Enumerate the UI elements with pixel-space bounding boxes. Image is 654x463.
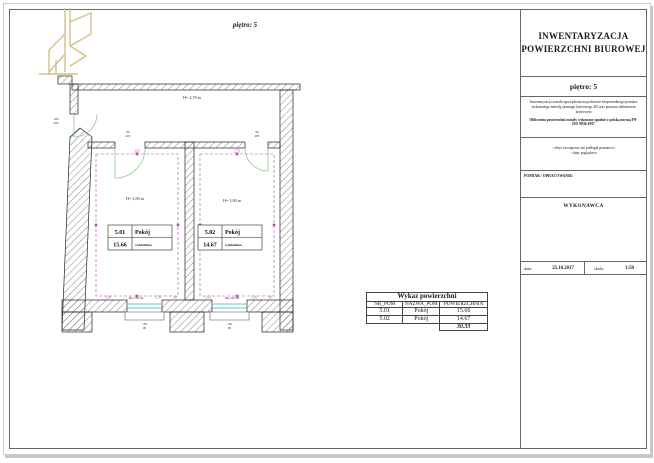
svg-text:205: 205 <box>54 121 59 125</box>
titleblock-empty-section <box>521 275 646 435</box>
room2-parapet-label: Hp= 90 cm <box>225 296 240 300</box>
bottom-right-pier <box>262 312 293 332</box>
norm-note: Obliczenia powierzchni zostały wykonane … <box>527 118 640 128</box>
room1-flooring: wykładzina <box>135 243 152 247</box>
area-table-title: Wykaz powierzchni <box>367 293 488 302</box>
scale-label: skala: <box>585 266 613 271</box>
room1-door-swing-arc <box>115 148 145 178</box>
table-row: 5.01 Pokój 15.66 <box>367 308 488 316</box>
dim-node-marker <box>273 224 276 227</box>
column-header: NAZWA_POM <box>403 301 440 308</box>
total-area: 30.33 <box>440 323 488 331</box>
area-table: Wykaz powierzchni NR_POM NAZWA_POM POWIE… <box>366 292 488 331</box>
room2-window-size-label: 150 90 <box>227 322 232 330</box>
bottom-left-pier <box>62 312 92 332</box>
cell-pow: 14.67 <box>440 316 488 324</box>
room2-name: Pokój <box>225 230 240 236</box>
bottom-center-pier <box>170 312 204 332</box>
room1-parapet-label: Hp= 90 cm <box>129 296 144 300</box>
dim-node-marker <box>177 224 180 227</box>
titleblock-floor: piętro: 5 <box>521 77 646 97</box>
room2-height-label: H= 2,80 m <box>223 198 242 204</box>
survey-method-note: Inwentaryzacja została sporządzona na po… <box>527 100 640 115</box>
room2-door-size-label: 90 205 <box>255 130 260 138</box>
room1-bottom-dim-mid: 1,50 <box>155 296 161 301</box>
date-value: 25.10.2017 <box>542 266 584 271</box>
titleblock-outline-note: - obrys zewnętrzny nie podlegał pomiarow… <box>521 138 646 171</box>
titleblock-pomiar-section: POMIAR / OPRACOWANIE: <box>521 171 646 198</box>
corridor-door-size-label: 100 205 <box>54 117 59 125</box>
bottom-wall-segment <box>247 300 293 312</box>
table-total-row: 30.33 <box>367 323 488 331</box>
sheet-title-line1: INWENTARYZACJA <box>521 30 645 42</box>
titleblock-notes: Inwentaryzacja została sporządzona na po… <box>521 97 646 138</box>
outline-note-line2: - służy poglądowo <box>531 151 636 156</box>
cell-nr: 5.02 <box>367 316 403 324</box>
pomiar-label: POMIAR / OPRACOWANIE: <box>524 174 573 178</box>
room1-area: 15.66 <box>113 243 127 249</box>
column-header: POWIERZCHNIA <box>440 301 488 308</box>
window-sill <box>125 312 164 320</box>
bottom-wall-segment <box>162 300 212 312</box>
column-header: NR_POM <box>367 301 403 308</box>
room1-window-size-label: 150 90 <box>142 322 147 330</box>
titleblock-footer: data: 25.10.2017 skala: 1:50 <box>521 262 646 275</box>
room2-number: 5.02 <box>205 230 216 236</box>
room1-door-size-label: 90 205 <box>126 130 131 138</box>
drawing-sheet: piętro: 5 <box>0 0 654 463</box>
wykonawca-label: WYKONAWCA <box>563 203 603 209</box>
room1-name: Pokój <box>135 230 150 236</box>
cell-nazwa: Pokój <box>403 316 440 324</box>
bottom-wall-segment <box>62 300 127 312</box>
scale-value: 1:50 <box>613 266 646 271</box>
svg-text:90: 90 <box>143 326 147 330</box>
logo-monogram-lines <box>39 8 91 74</box>
right-exterior-wall <box>280 90 293 330</box>
svg-text:90: 90 <box>228 326 232 330</box>
svg-text:205: 205 <box>255 134 260 138</box>
date-label: data: <box>521 266 542 271</box>
room1-number: 5.01 <box>115 230 126 236</box>
window-sill <box>210 312 249 320</box>
room2-bottom-dim-right: 40 <box>268 296 272 300</box>
top-left-wall-jog <box>58 76 72 84</box>
sheet-title-line2: POWIERZCHNI BIUROWEJ <box>521 43 645 55</box>
partition-wall <box>185 142 194 300</box>
cell-pow: 15.66 <box>440 308 488 316</box>
corridor-height-label: H= 2,70 m <box>183 95 202 101</box>
titleblock-title-section: INWENTARYZACJA POWIERZCHNI BIUROWEJ <box>521 9 646 77</box>
cell-nr: 5.01 <box>367 308 403 316</box>
table-header-row: NR_POM NAZWA_POM POWIERZCHNIA <box>367 301 488 308</box>
room2-door-swing-arc <box>245 148 268 171</box>
room-top-wall-segment <box>268 142 280 148</box>
floor-label: piętro: 5 <box>200 21 290 29</box>
table-row: 5.02 Pokój 14.67 <box>367 316 488 324</box>
left-upper-wall-stub <box>70 84 78 114</box>
cell-nazwa: Pokój <box>403 308 440 316</box>
room2-flooring: wykładzina <box>225 243 242 247</box>
room1-height-label: H= 2,80 m <box>126 196 145 202</box>
title-block: INWENTARYZACJA POWIERZCHNI BIUROWEJ pięt… <box>521 9 646 447</box>
room1-bottom-dim-right: 40 <box>173 296 177 300</box>
room-top-wall-segment <box>145 142 245 148</box>
dim-node-marker <box>95 224 98 227</box>
top-corridor-wall <box>72 84 300 90</box>
titleblock-wykonawca-section: WYKONAWCA <box>521 198 646 262</box>
room2-area: 14.67 <box>203 243 217 249</box>
svg-text:205: 205 <box>126 134 131 138</box>
floor-plan: H= 2,70 m H= 2,80 m H= 2,80 m 3,05 2,75 … <box>32 70 310 342</box>
room-top-wall-segment <box>88 142 115 148</box>
